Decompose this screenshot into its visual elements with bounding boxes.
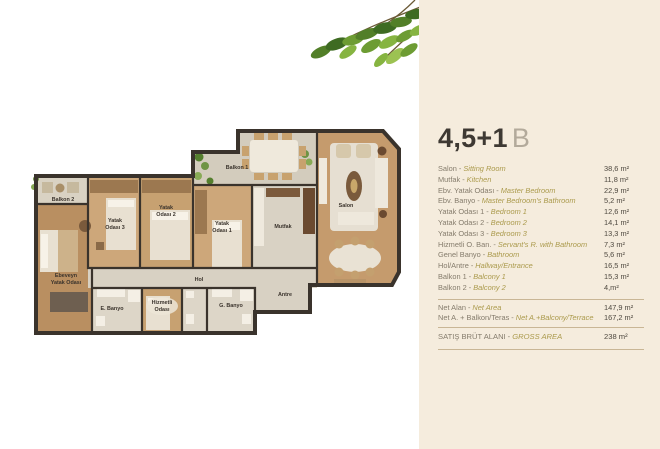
room-name-tr: Yatak Odası 1 xyxy=(438,207,484,216)
label-hizmetli-line1: Hizmetli xyxy=(152,300,173,306)
room-name-en: Servant's R. with Bathroom xyxy=(498,240,587,249)
total-row: Net Alan-Net Area147,9 m² xyxy=(438,303,644,313)
gross-area-row: SATIŞ BRÜT ALANI-GROSS AREA238 m² xyxy=(438,332,644,343)
plan-title: 4,5+1B xyxy=(438,124,644,153)
room-name-en: Bedroom 2 xyxy=(491,218,527,227)
total-name-tr: Net Alan xyxy=(438,303,466,312)
room-area: 11,8 m² xyxy=(604,175,644,186)
room-list: Salon-Sitting Room38,6 m² Mutfak-Kitchen… xyxy=(438,164,644,294)
room-row: Yatak Odası 2-Bedroom 214,1 m² xyxy=(438,218,644,229)
totals-section: Net Alan-Net Area147,9 m² Net A. + Balko… xyxy=(438,300,644,327)
room-name-en: Master Bedroom's Bathroom xyxy=(482,196,576,205)
room-wc-floor xyxy=(182,288,207,333)
separator: - xyxy=(508,332,511,341)
brochure-page: Balkon 2 Yatak Odası 3 Yatak Odası 2 Yat… xyxy=(0,0,660,449)
separator: - xyxy=(511,313,513,322)
separator: - xyxy=(486,218,488,227)
room-area: 4,m² xyxy=(604,283,644,294)
separator: - xyxy=(468,303,470,312)
room-area: 5,6 m² xyxy=(604,250,644,261)
label-ebeveyn-line2: Yatak Odası xyxy=(51,280,82,286)
room-name-en: Bedroom 3 xyxy=(491,229,527,238)
room-name-tr: Mutfak xyxy=(438,175,460,184)
label-hol: Hol xyxy=(195,277,204,283)
room-name-tr: Yatak Odası 2 xyxy=(438,218,484,227)
room-name-en: Balcony 1 xyxy=(473,272,505,281)
label-yatak2-line1: Yatak xyxy=(159,205,173,211)
room-area: 22,9 m² xyxy=(604,186,644,197)
room-row: Hol/Antre-Hallway/Entrance16,5 m² xyxy=(438,261,644,272)
room-area: 7,3 m² xyxy=(604,240,644,251)
label-antre: Antre xyxy=(278,292,292,298)
gross-name-en: GROSS AREA xyxy=(512,332,562,341)
leaf-branch-decoration xyxy=(293,0,435,72)
room-row: Ebv. Banyo-Master Bedroom's Bathroom5,2 … xyxy=(438,196,644,207)
room-row: Salon-Sitting Room38,6 m² xyxy=(438,164,644,175)
room-area: 5,2 m² xyxy=(604,196,644,207)
label-mutfak: Mutfak xyxy=(274,224,291,230)
total-name-en: Net Area xyxy=(472,303,501,312)
room-name-tr: Balkon 2 xyxy=(438,283,467,292)
room-row: Yatak Odası 3-Bedroom 313,3 m² xyxy=(438,229,644,240)
room-name-en: Bedroom 1 xyxy=(491,207,527,216)
separator: - xyxy=(459,164,461,173)
room-name-tr: Hol/Antre xyxy=(438,261,469,270)
room-name-en: Bathroom xyxy=(487,250,519,259)
divider xyxy=(438,349,644,350)
info-panel: 4,5+1B Salon-Sitting Room38,6 m² Mutfak-… xyxy=(419,0,660,449)
label-balkon2: Balkon 2 xyxy=(52,197,74,203)
room-row: Balkon 1-Balcony 115,3 m² xyxy=(438,272,644,283)
total-name-en: Net A.+Balcony/Terrace xyxy=(516,313,594,322)
room-area: 15,3 m² xyxy=(604,272,644,283)
room-name-en: Hallway/Entrance xyxy=(475,261,533,270)
separator: - xyxy=(462,175,464,184)
separator: - xyxy=(486,207,488,216)
total-name-tr: Net A. + Balkon/Teras xyxy=(438,313,509,322)
label-ebeveyn-line1: Ebeveyn xyxy=(55,273,77,279)
room-row: Yatak Odası 1-Bedroom 112,6 m² xyxy=(438,207,644,218)
gross-area-section: SATIŞ BRÜT ALANI-GROSS AREA238 m² xyxy=(438,328,644,349)
label-yatak1-line2: Odası 1 xyxy=(212,228,231,234)
gross-name-tr: SATIŞ BRÜT ALANI xyxy=(438,332,506,341)
label-balkon1: Balkon 1 xyxy=(226,165,248,171)
room-name-en: Master Bedroom xyxy=(501,186,556,195)
branch-leaves xyxy=(309,7,435,69)
room-area: 13,3 m² xyxy=(604,229,644,240)
room-name-tr: Salon xyxy=(438,164,457,173)
separator: - xyxy=(483,250,485,259)
total-area: 167,2 m² xyxy=(604,313,644,323)
label-yatak2-line2: Odası 2 xyxy=(156,212,175,218)
room-area: 12,6 m² xyxy=(604,207,644,218)
label-hizmetli-line2: Odası xyxy=(155,307,170,313)
room-name-en: Sitting Room xyxy=(463,164,505,173)
plan-title-number: 4,5+1 xyxy=(438,123,508,153)
label-e-banyo: E. Banyo xyxy=(100,306,124,312)
room-area: 38,6 m² xyxy=(604,164,644,175)
label-g-banyo: G. Banyo xyxy=(219,303,243,309)
label-salon: Salon xyxy=(339,203,354,209)
gross-area-value: 238 m² xyxy=(604,332,644,343)
room-name-tr: Genel Banyo xyxy=(438,250,481,259)
room-name-tr: Ebv. Banyo xyxy=(438,196,475,205)
total-area: 147,9 m² xyxy=(604,303,644,313)
label-yatak3-line2: Odası 3 xyxy=(105,225,124,231)
label-yatak1-line1: Yatak xyxy=(215,221,229,227)
separator: - xyxy=(486,229,488,238)
separator: - xyxy=(471,261,473,270)
room-antre-floor xyxy=(255,268,310,312)
room-name-tr: Balkon 1 xyxy=(438,272,467,281)
room-name-tr: Ebv. Yatak Odası xyxy=(438,186,494,195)
room-row: Balkon 2-Balcony 24,m² xyxy=(438,283,644,294)
room-row: Genel Banyo-Bathroom5,6 m² xyxy=(438,250,644,261)
label-yatak3-line1: Yatak xyxy=(108,218,122,224)
separator: - xyxy=(469,272,471,281)
room-row: Ebv. Yatak Odası-Master Bedroom22,9 m² xyxy=(438,186,644,197)
room-row: Hizmetli O. Ban.-Servant's R. with Bathr… xyxy=(438,240,644,251)
room-row: Mutfak-Kitchen11,8 m² xyxy=(438,175,644,186)
separator: - xyxy=(469,283,471,292)
plan-title-block-letter: B xyxy=(512,123,530,153)
room-name-en: Kitchen xyxy=(467,175,492,184)
total-row: Net A. + Balkon/Teras-Net A.+Balcony/Ter… xyxy=(438,313,644,323)
room-name-en: Balcony 2 xyxy=(473,283,505,292)
separator: - xyxy=(496,186,498,195)
room-area: 14,1 m² xyxy=(604,218,644,229)
room-name-tr: Yatak Odası 3 xyxy=(438,229,484,238)
separator: - xyxy=(477,196,479,205)
room-area: 16,5 m² xyxy=(604,261,644,272)
room-name-tr: Hizmetli O. Ban. xyxy=(438,240,491,249)
separator: - xyxy=(493,240,495,249)
